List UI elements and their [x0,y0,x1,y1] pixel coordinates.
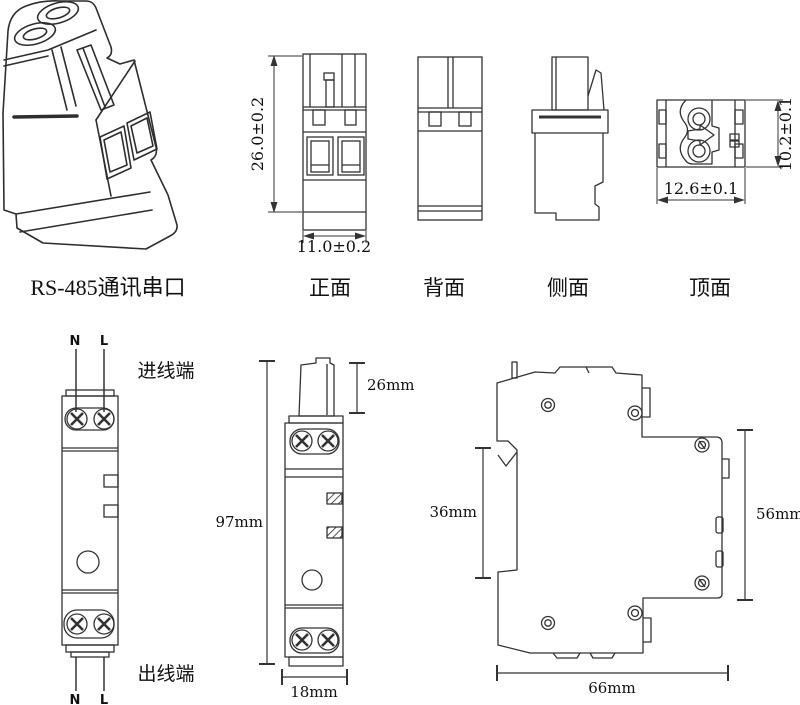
back-view-label: 背面 [423,276,465,300]
height-97-label: 97mm [215,513,263,531]
hatched-label-2 [327,527,342,538]
front-view-label: 正面 [309,276,351,300]
width-18-label: 18mm [290,683,338,701]
rs485-technical-drawing: RS-485通讯串口 26.0±0.2 11.0±0.2 [0,0,800,705]
wire-label-l-bottom: L [100,693,108,705]
rail-36-label: 36mm [429,503,477,521]
plug-26-label: 26mm [367,376,415,394]
technical-drawing-page: RS-485通讯串口 26.0±0.2 11.0±0.2 [0,0,800,705]
side-view-label: 侧面 [547,276,589,300]
wire-label-l-top: L [100,334,108,349]
iso-thick-line [14,116,77,117]
iso-view-label: RS-485通讯串口 [30,275,185,300]
top-view-label: 顶面 [689,276,731,300]
front-width-dim-label: 11.0±0.2 [297,237,371,256]
front-height-dim-label: 26.0±0.2 [248,97,267,171]
depth-66-label: 66mm [588,679,636,697]
top-width-dim-label: 12.6±0.1 [664,179,738,198]
top-height-dim-label: 10.2±0.1 [776,97,795,171]
hatched-label-1 [327,493,342,504]
background [0,0,800,705]
height-56-label: 56mm [756,505,800,523]
wire-label-n-bottom: N [70,693,81,705]
inlet-label: 进线端 [137,360,194,382]
outlet-label: 出线端 [137,663,194,685]
wire-label-n-top: N [70,334,81,349]
